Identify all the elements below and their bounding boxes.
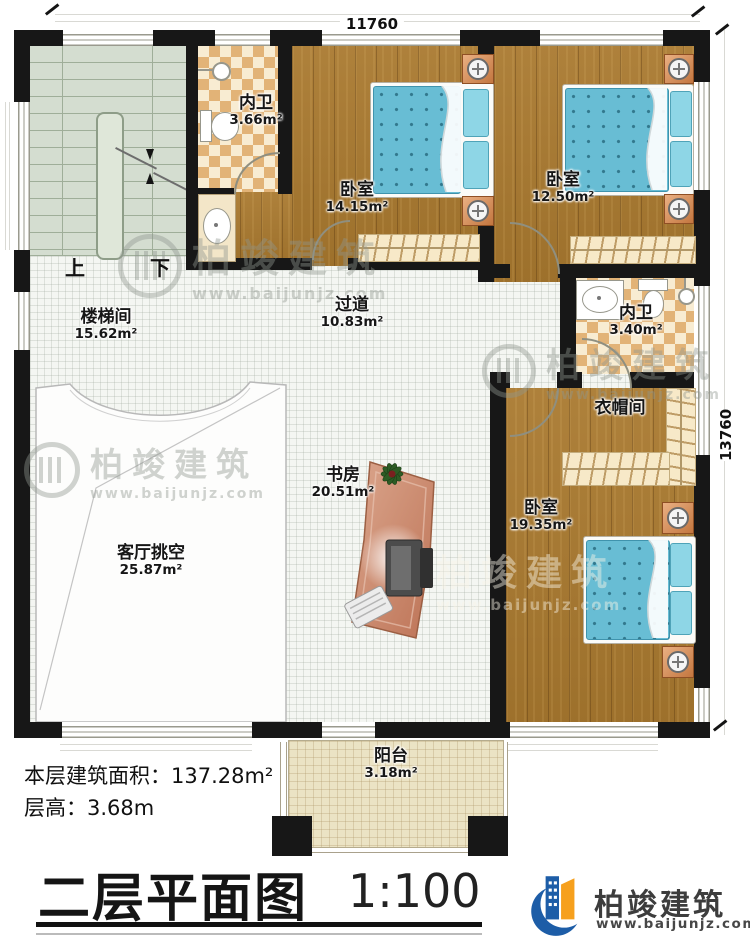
brand-logo-icon [528,868,590,940]
nightstand [462,196,494,226]
window [14,292,30,350]
blanket [636,540,668,638]
wall [375,722,510,738]
nightstand [662,646,694,678]
sill-line [60,744,252,745]
balcony-pillar [272,816,312,856]
room-label-bedroom2: 卧室12.50m² [532,171,595,205]
floor-height-value: 3.68m [87,796,154,820]
nightstand [462,54,494,84]
floor-height-label: 层高： [24,796,87,820]
lamp-icon [467,200,489,222]
dimension-line-right [724,30,725,735]
wall [490,372,506,722]
stairs-down-label: 下 [150,252,170,281]
wall [14,250,30,292]
title-underline-thin [36,933,482,935]
wardrobe [666,388,696,486]
wall [694,30,710,82]
lamp-icon [667,507,689,529]
sill-line [60,750,252,751]
nightstand [662,502,694,534]
sill-line [508,744,658,745]
window [540,30,663,46]
window [694,688,710,722]
room-label-cloakroom: 衣帽间 [595,399,646,418]
lamp-icon [467,58,489,80]
wall [14,350,30,722]
lamp-icon [667,651,689,673]
stair-arrow-up-icon [146,173,154,184]
room-label-stairwell: 楼梯间15.62m² [75,308,138,342]
wardrobe [570,236,696,264]
wall [14,722,62,738]
wall [270,30,322,46]
computer-monitor-icon [386,540,433,596]
wall [658,722,710,738]
brand-url: www.baijunjz.com [596,916,750,932]
blanket [429,86,461,192]
window [14,102,30,250]
room-label-bedroom3: 卧室19.35m² [510,499,573,533]
stairs-up-label: 上 [65,252,85,281]
sill-line [508,750,658,751]
balcony-door [322,722,375,738]
nightstand [664,54,694,84]
floor-height-stat: 层高：3.68m [24,792,154,822]
wall [557,372,582,388]
stair-landing-rail [96,112,124,260]
pillow [670,91,692,137]
wardrobe [562,452,670,486]
pillow [463,89,489,137]
lamp-icon [668,198,690,220]
floor-area-stat: 本层建筑面积：137.28m² [24,760,273,790]
lamp-icon [668,58,690,80]
floor-area-value: 137.28m² [171,764,273,788]
window [63,30,153,46]
room-label-bedroom1: 卧室14.15m² [326,181,389,215]
room-label-balcony: 阳台3.18m² [364,747,417,781]
window [510,722,658,738]
sink-drain [597,296,601,300]
room-label-hallway: 过道10.83m² [321,296,384,330]
stair-arrow-down-icon [146,149,154,160]
pillow [670,543,692,587]
wall [14,30,30,102]
room-label-study: 书房20.51m² [312,466,375,500]
bed [370,82,494,198]
shower-arm [684,278,686,289]
wall [494,264,510,278]
room-label-living-void: 客厅挑空25.87m² [117,544,185,578]
pillow [670,591,692,635]
pillow [463,141,489,189]
wall [694,190,710,286]
dimension-tick [691,5,705,17]
window [62,722,252,738]
dimension-tick [715,23,729,35]
shower-head [678,288,695,305]
wall [153,30,215,46]
title-underline [36,922,482,927]
wall [460,30,540,46]
shower-arm [198,69,213,71]
wall [560,264,576,388]
sill-line [9,102,10,250]
window [694,82,710,190]
blanket [635,88,667,190]
window [215,30,270,46]
stair-stringer [62,46,63,256]
window [694,286,710,455]
sink-drain [214,223,218,227]
balcony-pillar [468,816,508,856]
nightstand [664,194,694,224]
wall [186,30,198,262]
page-title: 二层平面图 [38,856,308,931]
sill-line [5,102,6,250]
pillow [670,141,692,187]
bed [583,536,696,644]
wall [252,722,322,738]
dimension-right: 13760 [717,413,735,461]
wall [630,372,694,388]
floor-plan: 柏竣建筑 www.baijunjz.com 柏竣建筑 www.baijunjz.… [0,0,750,946]
wall [558,264,694,278]
room-label-bath1: 内卫3.66m² [229,94,282,128]
drawing-scale: 1:100 [348,864,481,918]
wardrobe [358,234,480,262]
dimension-top: 11760 [340,15,404,33]
room-label-bath2: 内卫3.40m² [609,304,662,338]
shower-head [212,62,231,81]
wall [694,455,710,688]
floor-area-label: 本层建筑面积： [24,764,171,788]
